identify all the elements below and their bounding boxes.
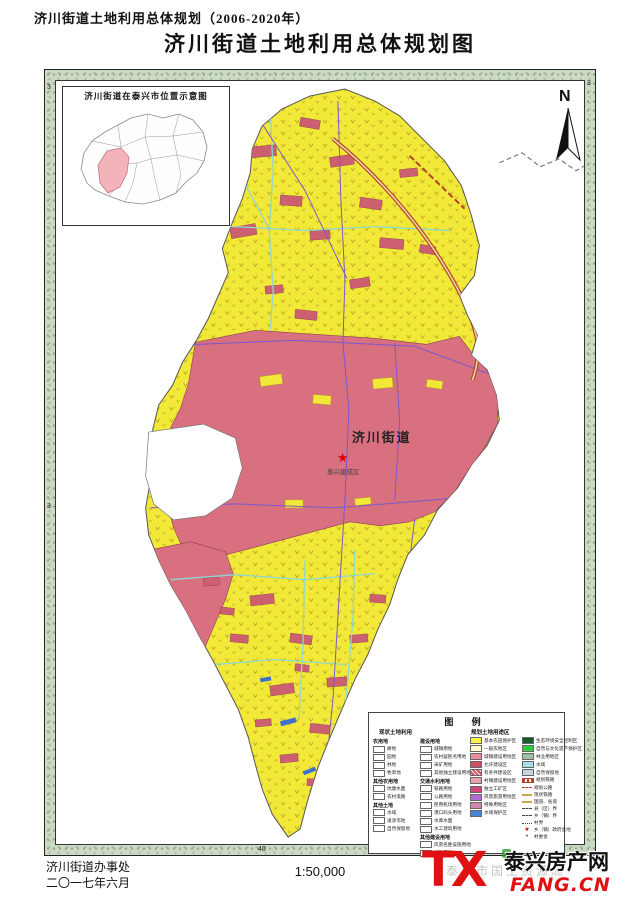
legend-label: 村委会	[534, 834, 548, 840]
legend-item: 自然保留地	[373, 825, 418, 832]
legend-column-plan-zones: 基本农田保护区一般农地区城镇建设用地区允许建设区有条件建设区村镇建设用地区独立工…	[470, 737, 520, 818]
legend-section-header: 建设用地	[420, 738, 468, 745]
legend-label: 生态环境安全控制区	[536, 738, 577, 744]
legend-swatch	[522, 823, 532, 824]
legend-item: 铁路用地	[420, 785, 468, 792]
legend-item: 有条件建设区	[470, 769, 520, 776]
legend-label: 水域	[387, 810, 396, 816]
grid-tick-right-top: 3	[587, 80, 591, 87]
legend-label: 坑塘水面	[387, 786, 405, 792]
legend-item: 风景旅游用地区	[470, 794, 520, 801]
legend-label: 自然保留地	[387, 826, 410, 832]
map-center-label: 济川街道	[352, 430, 412, 445]
legend-section-header: 其他建设用地	[420, 834, 468, 841]
legend-item: 县（区）界	[522, 806, 562, 812]
legend-item: 其他独立建设用地	[420, 770, 468, 777]
legend-swatch	[470, 753, 482, 760]
legend-item: 水域	[522, 761, 562, 768]
legend-swatch	[470, 810, 482, 817]
legend-item: 港口码头用地	[420, 810, 468, 817]
legend-label: 一般农地区	[484, 746, 507, 752]
grid-tick-left-top: 3	[47, 84, 51, 91]
legend-swatch	[373, 762, 385, 769]
legend-item: 自然保留地	[522, 769, 562, 776]
legend-label: 风景旅游用地区	[484, 794, 516, 800]
legend-swatch	[522, 787, 532, 788]
legend-section-header: 农用地	[373, 738, 418, 745]
legend-swatch	[470, 794, 482, 801]
legend-item: 城镇用地	[420, 746, 468, 753]
legend-swatch	[420, 810, 432, 817]
legend-label: 国道、省道	[534, 799, 557, 805]
legend-label: 城镇用地	[434, 746, 452, 752]
legend-label: 滩涂苇地	[387, 818, 405, 824]
legend-label: 水域	[536, 762, 545, 768]
north-label: N	[559, 88, 571, 106]
legend-label: 铁路用地	[434, 786, 452, 792]
legend-swatch	[522, 808, 532, 809]
legend-label: 农村居民点用地	[434, 754, 466, 760]
legend-swatch	[420, 793, 432, 800]
legend-item: 公路用地	[420, 793, 468, 800]
legend-label: 县（区）界	[534, 806, 557, 812]
legend-swatch	[420, 762, 432, 769]
legend-swatch	[373, 809, 385, 816]
legend-label: 现状铁路	[534, 792, 552, 798]
legend-item: ★乡（镇）政府驻地	[522, 827, 562, 833]
legend-item: 规划铁路	[522, 777, 562, 783]
legend-swatch	[373, 770, 385, 777]
legend-item: 一般农地区	[470, 745, 520, 752]
legend-swatch	[420, 785, 432, 792]
legend-item: 允许建设区	[470, 761, 520, 768]
legend-label: 自然与文化遗产保护区	[536, 746, 582, 752]
legend-label: 港口码头用地	[434, 810, 462, 816]
legend-item: 坑塘水面	[373, 785, 418, 792]
legend-section-header: 交通水利用地	[420, 778, 468, 785]
legend-column-construction: 建设用地城镇用地农村居民点用地采矿用地其他独立建设用地交通水利用地铁路用地公路用…	[420, 737, 468, 858]
legend-item: 园地	[373, 754, 418, 761]
inset-map-drawing	[63, 103, 229, 221]
legend-label: 农村道路	[387, 794, 405, 800]
legend-swatch	[522, 778, 534, 783]
legend-swatch	[373, 817, 385, 824]
legend-label: 独立工矿区	[484, 786, 507, 792]
page-title: 济川街道土地利用总体规划图	[0, 28, 640, 58]
legend-label: 采矿用地	[434, 762, 452, 768]
legend-label: 园地	[387, 754, 396, 760]
legend-label: 耕地	[387, 746, 396, 752]
legend-item: •村委会	[522, 834, 562, 840]
legend-current-header: 现状土地利用	[379, 728, 412, 736]
legend-swatch: •	[522, 835, 532, 840]
legend-panel: 图 例 现状土地利用 规划土地用途区 农用地耕地园地林地牧草地其他农用地坑塘水面…	[368, 712, 565, 854]
legend-swatch	[470, 769, 482, 776]
legend-item: 水库水面	[420, 818, 468, 825]
urban-area-label: 泰兴建成区	[327, 467, 360, 476]
legend-item: 水工建筑用地	[420, 826, 468, 833]
legend-swatch	[522, 794, 532, 796]
legend-swatch	[420, 746, 432, 753]
legend-label: 其他独立建设用地	[434, 770, 471, 776]
legend-item: 村界	[522, 820, 562, 826]
legend-item: 农村道路	[373, 793, 418, 800]
legend-item: 采矿用地	[420, 762, 468, 769]
legend-plan-header: 规划土地用途区	[471, 728, 510, 736]
legend-swatch	[470, 737, 482, 744]
legend-item: 独立工矿区	[470, 786, 520, 793]
legend-item: 农村居民点用地	[420, 754, 468, 761]
legend-label: 有条件建设区	[484, 770, 512, 776]
legend-swatch	[470, 745, 482, 752]
legend-swatch	[420, 818, 432, 825]
inset-title: 济川街道在泰兴市位置示意图	[63, 90, 229, 102]
legend-swatch	[373, 785, 385, 792]
legend-swatch	[522, 737, 534, 744]
legend-item: 生态环境安全控制区	[522, 737, 562, 744]
legend-label: 自然保留地	[536, 770, 559, 776]
location-inset-map: 济川街道在泰兴市位置示意图	[62, 86, 230, 226]
legend-label: 允许建设区	[484, 762, 507, 768]
legend-swatch	[522, 761, 534, 768]
legend-swatch	[373, 754, 385, 761]
legend-label: 公路用地	[434, 794, 452, 800]
grid-tick-bottom-left: 40	[258, 846, 266, 853]
legend-item: 滩涂苇地	[373, 817, 418, 824]
legend-swatch	[522, 745, 534, 752]
legend-label: 水域保护区	[484, 810, 507, 816]
legend-label: 城镇建设用地区	[484, 754, 516, 760]
legend-item: 牧草地	[373, 770, 418, 777]
legend-column-lines: 生态环境安全控制区自然与文化遗产保护区林业用地区水域自然保留地规划铁路规划公路现…	[522, 737, 562, 841]
government-star-icon: ★	[337, 450, 349, 465]
site-domain: FANG.CN	[510, 874, 611, 896]
north-arrow: N	[546, 88, 590, 174]
legend-swatch	[470, 802, 482, 809]
legend-item: 现状铁路	[522, 792, 562, 798]
legend-swatch	[373, 825, 385, 832]
legend-label: 牧草地	[387, 770, 401, 776]
legend-section-header: 其他农用地	[373, 778, 418, 785]
legend-swatch	[420, 754, 432, 761]
legend-swatch	[470, 777, 482, 784]
legend-item: 林业用地区	[522, 753, 562, 760]
legend-item: 城镇建设用地区	[470, 753, 520, 760]
legend-label: 村镇建设用地区	[484, 778, 516, 784]
legend-swatch	[420, 770, 432, 777]
legend-title: 图 例	[369, 715, 564, 728]
legend-item: 村镇建设用地区	[470, 777, 520, 784]
legend-swatch	[373, 793, 385, 800]
legend-item: 民用机场用地	[420, 802, 468, 809]
legend-label: 乡（镇）政府驻地	[534, 827, 571, 833]
legend-swatch	[522, 769, 534, 776]
grid-tick-left-mid: 3	[47, 503, 51, 510]
legend-swatch	[373, 746, 385, 753]
legend-label: 水工建筑用地	[434, 826, 462, 832]
document-subtitle: 济川街道土地利用总体规划（2006-2020年）	[34, 8, 309, 27]
legend-label: 规划铁路	[536, 777, 554, 783]
legend-item: 国道、省道	[522, 799, 562, 805]
legend-swatch	[470, 761, 482, 768]
legend-column-agricultural: 农用地耕地园地林地牧草地其他农用地坑塘水面农村道路其他土地水域滩涂苇地自然保留地	[373, 737, 418, 833]
legend-item: 水域保护区	[470, 810, 520, 817]
legend-swatch	[420, 802, 432, 809]
legend-label: 乡（镇）界	[534, 813, 557, 819]
site-name: 泰兴房产网	[504, 846, 609, 876]
legend-swatch: ★	[522, 828, 532, 833]
legend-swatch	[522, 753, 534, 760]
legend-item: 自然与文化遗产保护区	[522, 745, 562, 752]
legend-item: 水域	[373, 809, 418, 816]
legend-swatch	[420, 826, 432, 833]
legend-label: 水库水面	[434, 818, 452, 824]
legend-label: 村界	[534, 820, 543, 826]
legend-swatch	[522, 801, 532, 803]
legend-section-header: 其他土地	[373, 802, 418, 809]
legend-item: 基本农田保护区	[470, 737, 520, 744]
tx-logo: TX	[422, 842, 484, 898]
legend-item: 特殊用地区	[470, 802, 520, 809]
legend-label: 规划公路	[534, 785, 552, 791]
legend-label: 林地	[387, 762, 396, 768]
legend-item: 林地	[373, 762, 418, 769]
legend-label: 林业用地区	[536, 754, 559, 760]
legend-item: 耕地	[373, 746, 418, 753]
legend-swatch	[470, 786, 482, 793]
legend-label: 民用机场用地	[434, 802, 462, 808]
legend-label: 基本农田保护区	[484, 738, 516, 744]
legend-item: 规划公路	[522, 785, 562, 791]
north-arrow-icon	[546, 106, 590, 174]
legend-swatch	[522, 815, 532, 816]
legend-item: 乡（镇）界	[522, 813, 562, 819]
legend-label: 特殊用地区	[484, 802, 507, 808]
